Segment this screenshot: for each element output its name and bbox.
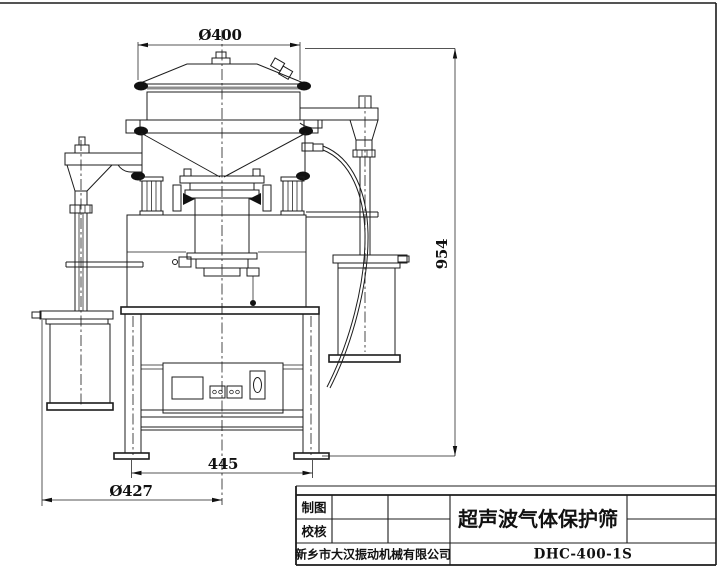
cable-plug bbox=[302, 143, 313, 151]
clamp-ring-left-low bbox=[131, 172, 145, 181]
lower-housing bbox=[121, 215, 319, 314]
left-discharge-assembly bbox=[65, 137, 143, 311]
collection-bucket-left bbox=[32, 311, 113, 410]
drawing-title: 超声波气体保护筛 bbox=[457, 507, 618, 531]
upper-drum bbox=[147, 92, 300, 120]
dim-label-overall-height: 954 bbox=[433, 239, 451, 269]
checker-label: 校核 bbox=[301, 524, 327, 539]
right-discharge-assembly bbox=[300, 96, 378, 255]
clamp-ring-right-low bbox=[296, 172, 310, 181]
clamp-ring-left-top bbox=[134, 82, 148, 91]
ultrasonic-sieve-drawing: Ø400 954 445 Ø427 制图 校核 超声波气体保护筛 新乡市大汉振动… bbox=[0, 0, 720, 568]
dome-lid bbox=[134, 52, 311, 91]
clamp-ring-left-mid bbox=[134, 127, 148, 136]
panel-switch bbox=[250, 371, 265, 399]
panel-display bbox=[172, 377, 203, 399]
panel-socket-1 bbox=[210, 386, 225, 398]
support-spring-right bbox=[281, 177, 304, 215]
drafter-label: 制图 bbox=[301, 500, 326, 515]
dim-label-leg-span: 445 bbox=[208, 455, 238, 473]
company-name: 新乡市大汉振动机械有限公司 bbox=[295, 547, 451, 562]
dimension-overall-height: 954 bbox=[305, 49, 457, 457]
model-number: DHC-400-1S bbox=[534, 547, 633, 563]
cad-drawing-sheet: Ø400 954 445 Ø427 制图 校核 超声波气体保护筛 新乡市大汉振动… bbox=[0, 0, 720, 568]
collection-bucket-right bbox=[329, 255, 409, 362]
control-panel bbox=[163, 363, 283, 413]
title-block: 制图 校核 超声波气体保护筛 新乡市大汉振动机械有限公司 DHC-400-1S bbox=[295, 486, 716, 565]
support-spring-left bbox=[140, 177, 163, 215]
dim-label-top-diameter: Ø400 bbox=[198, 26, 241, 44]
pipe-bracket-left bbox=[66, 262, 143, 267]
dim-label-base-circle: Ø427 bbox=[109, 482, 152, 500]
ultrasonic-cable bbox=[302, 143, 368, 388]
screen-cone bbox=[131, 133, 310, 181]
sheet-border bbox=[0, 3, 716, 565]
inlet-fitting bbox=[269, 58, 294, 79]
clamp-ring-right-top bbox=[297, 82, 311, 91]
panel-socket-2 bbox=[227, 386, 242, 398]
